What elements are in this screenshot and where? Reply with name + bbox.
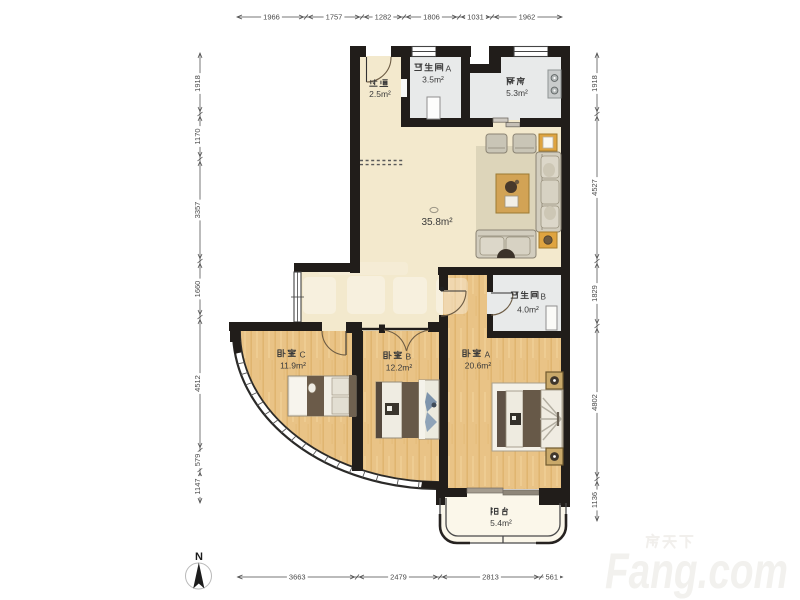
svg-text:B: B <box>541 293 547 302</box>
svg-text:2813: 2813 <box>482 573 499 582</box>
svg-text:579: 579 <box>193 454 202 467</box>
svg-text:2479: 2479 <box>390 573 407 582</box>
svg-text:C: C <box>300 350 306 360</box>
svg-text:561: 561 <box>545 573 558 582</box>
svg-text:1170: 1170 <box>193 128 202 144</box>
svg-text:11.9m²: 11.9m² <box>280 361 306 371</box>
svg-text:20.6m²: 20.6m² <box>465 361 492 371</box>
svg-text:1031: 1031 <box>467 13 484 22</box>
svg-text:1918: 1918 <box>193 75 202 92</box>
svg-text:Fang.com: Fang.com <box>605 543 788 599</box>
svg-text:1966: 1966 <box>263 13 280 22</box>
svg-text:A: A <box>446 64 452 74</box>
svg-text:35.8m²: 35.8m² <box>421 217 453 228</box>
svg-text:4802: 4802 <box>590 394 599 411</box>
svg-text:1757: 1757 <box>326 13 343 22</box>
svg-text:5.4m²: 5.4m² <box>490 518 512 528</box>
svg-text:N: N <box>195 551 203 563</box>
svg-text:1962: 1962 <box>519 13 536 22</box>
svg-text:1282: 1282 <box>375 13 392 22</box>
svg-text:3.5m²: 3.5m² <box>422 75 444 85</box>
svg-text:1918: 1918 <box>590 75 599 92</box>
svg-text:1147: 1147 <box>193 478 202 494</box>
svg-text:A: A <box>485 350 491 360</box>
svg-text:5.3m²: 5.3m² <box>506 88 528 98</box>
svg-text:4.0m²: 4.0m² <box>517 305 539 315</box>
svg-text:3663: 3663 <box>289 573 306 582</box>
svg-text:1806: 1806 <box>423 13 440 22</box>
svg-text:1829: 1829 <box>590 285 599 302</box>
svg-text:12.2m²: 12.2m² <box>386 363 413 373</box>
svg-text:1136: 1136 <box>590 492 599 508</box>
svg-text:4527: 4527 <box>590 179 599 196</box>
svg-text:2.5m²: 2.5m² <box>369 89 391 99</box>
svg-text:B: B <box>406 352 412 362</box>
svg-text:4512: 4512 <box>193 375 202 392</box>
svg-text:3357: 3357 <box>193 202 202 219</box>
svg-text:1660: 1660 <box>193 281 202 298</box>
